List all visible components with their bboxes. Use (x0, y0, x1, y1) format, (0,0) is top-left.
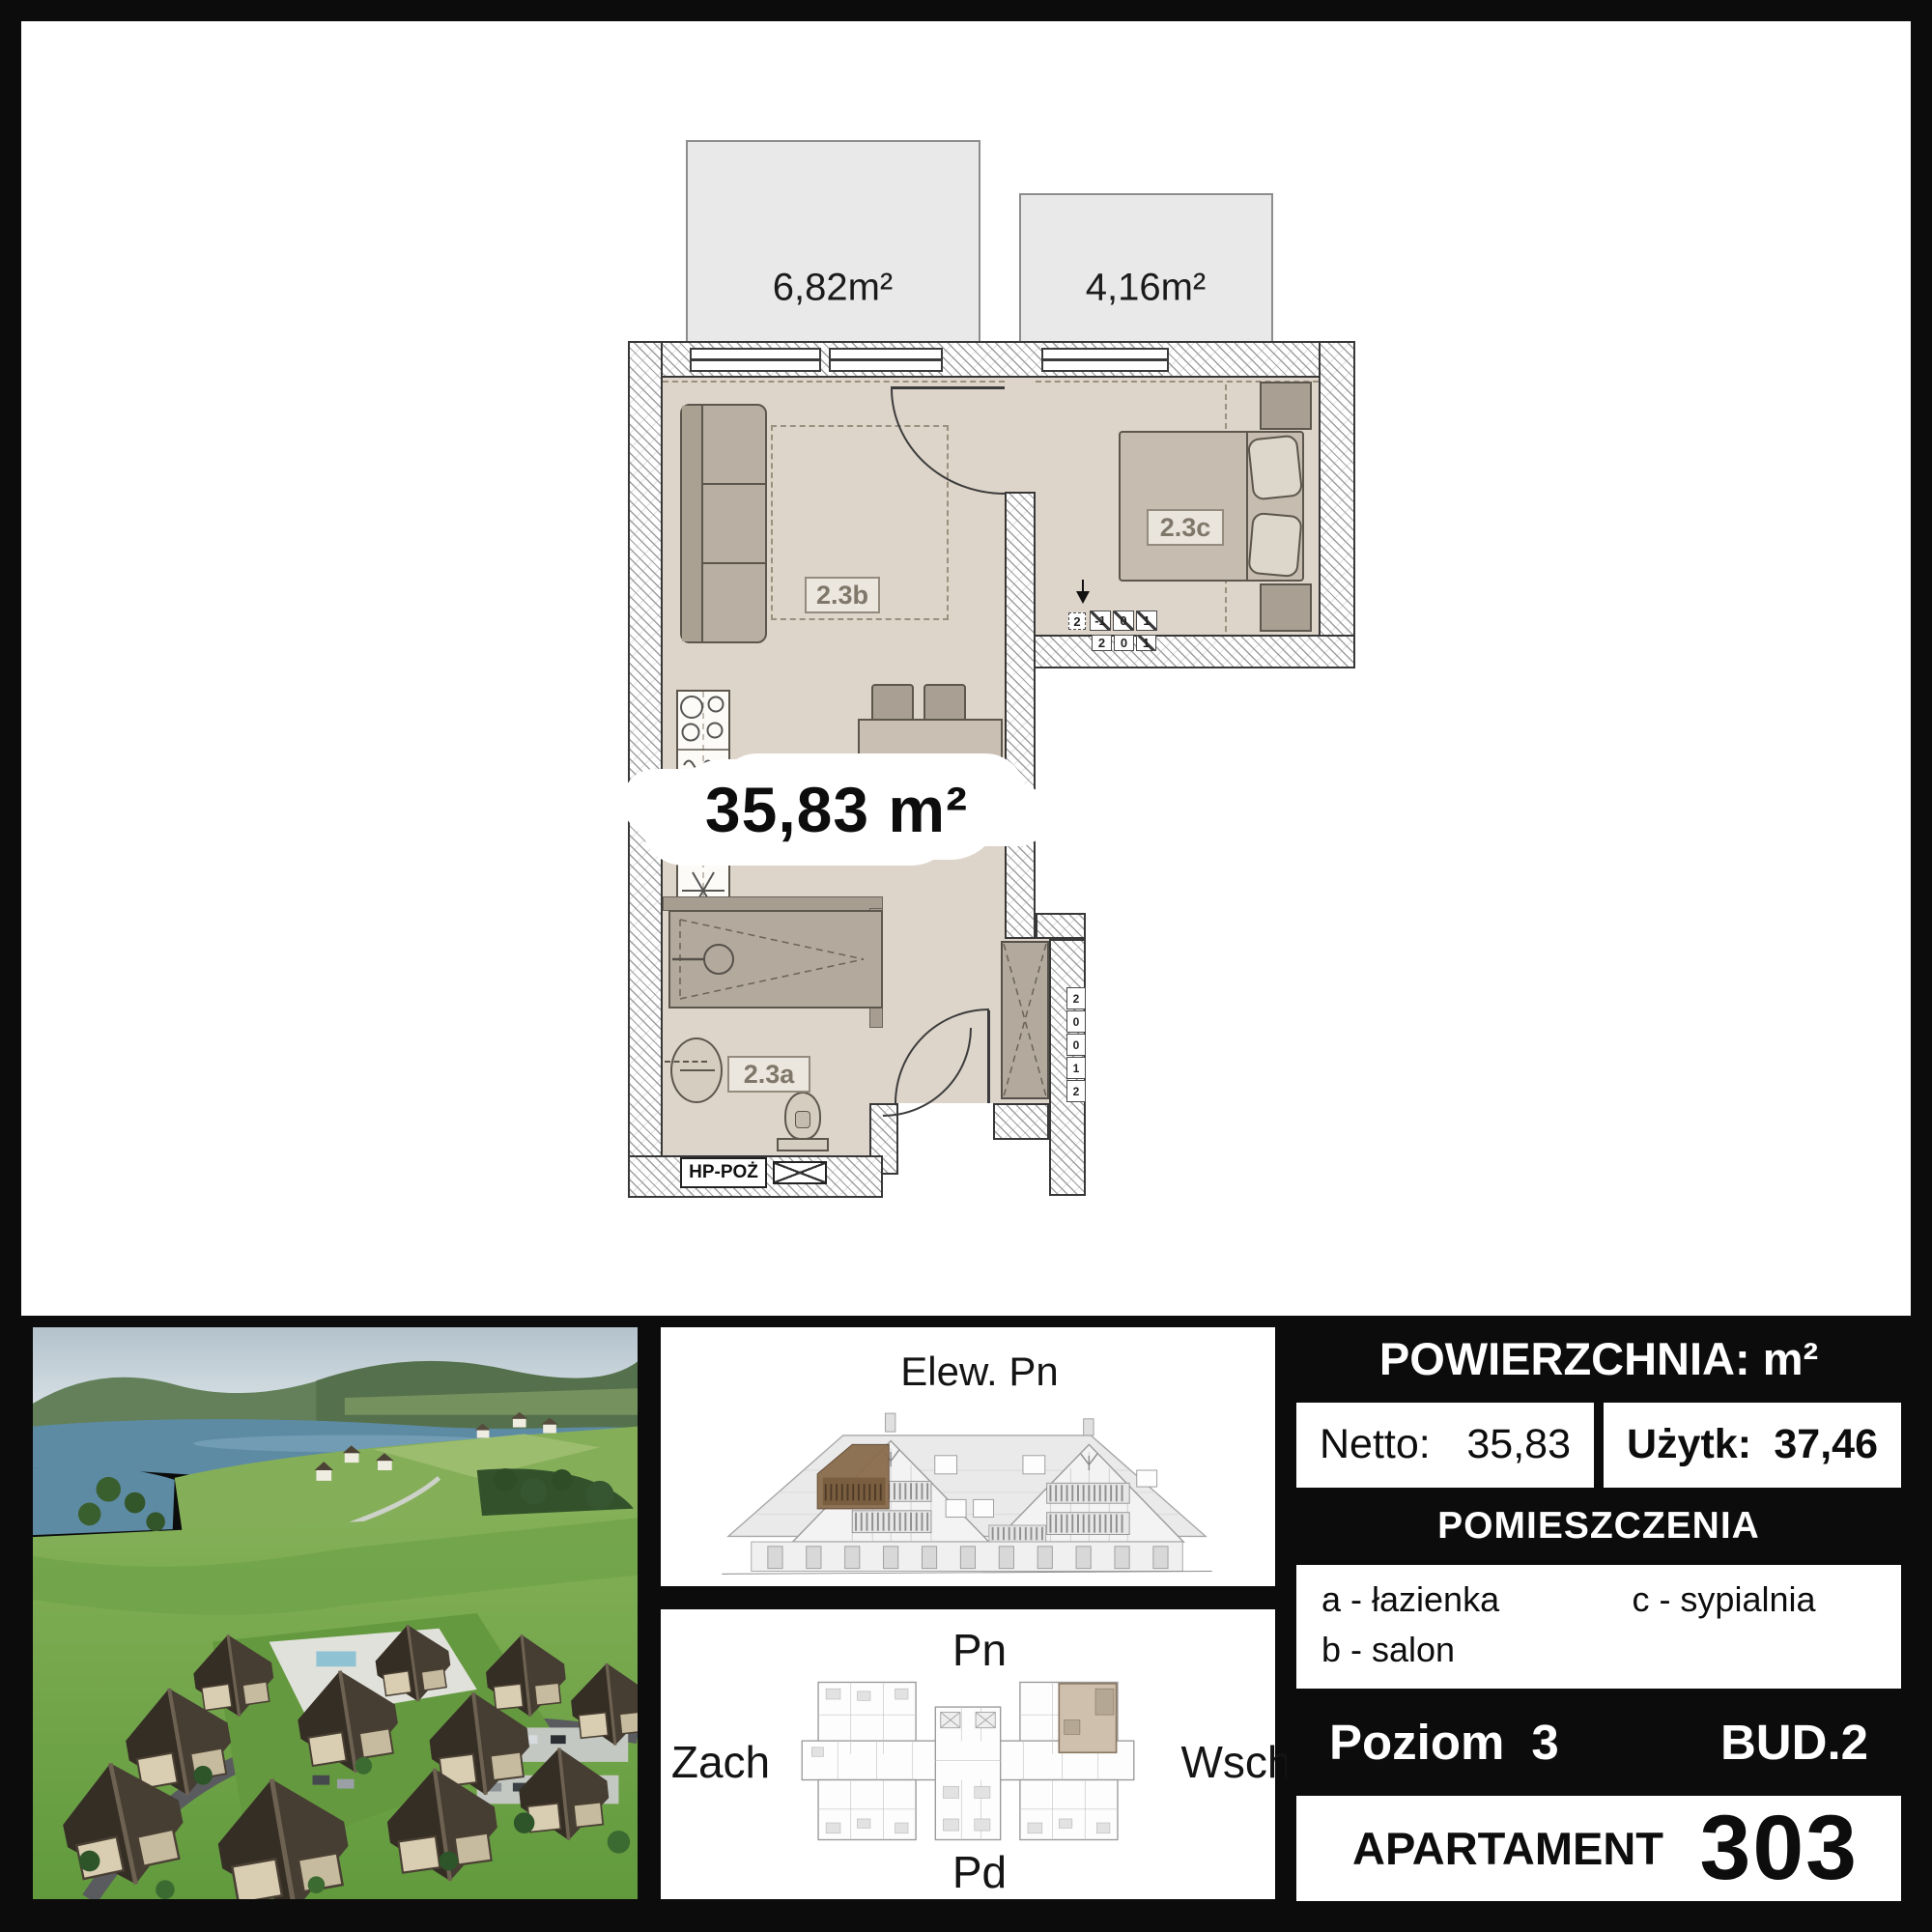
uzytk-value: 37,46 (1774, 1421, 1878, 1468)
level-value: 3 (1531, 1714, 1558, 1771)
wall-entry-stub (1036, 913, 1086, 939)
bathroom-sink (670, 1037, 723, 1103)
wall-east-bedroom (1319, 341, 1355, 668)
level-box: 2 (1092, 635, 1112, 651)
level-box: 0 (1113, 611, 1134, 631)
total-area-label: 35,83 m² (672, 759, 1001, 860)
legend-column-right: c - sypialnia (1632, 1575, 1876, 1625)
shower (668, 910, 883, 1009)
balcony-small-area-label: 4,16m² (1086, 267, 1207, 310)
elevation-drawing (701, 1397, 1233, 1580)
uzytk-label: Użytk: (1627, 1421, 1751, 1468)
pillow (1247, 434, 1303, 500)
info-panel: POWIERZCHNIA: m² Netto: 35,83 Użytk: 37,… (1287, 1316, 1911, 1911)
chair (871, 684, 914, 723)
stair-level-box: 1 (1066, 1057, 1086, 1079)
nightstand (1260, 583, 1312, 632)
bathroom-label: 2.3a (727, 1056, 810, 1093)
stair-level-box: 2 (1066, 987, 1086, 1009)
living-window-left (690, 348, 821, 372)
level-box: 2 (1068, 612, 1086, 630)
door-passage-floor (1005, 378, 1036, 492)
compass-east: Wsch (1181, 1736, 1293, 1788)
level-label: Poziom (1329, 1714, 1504, 1771)
balcony-large (686, 140, 980, 341)
compass-west: Zach (671, 1736, 770, 1788)
level-group: Poziom 3 (1329, 1714, 1559, 1771)
toilet-tank (777, 1138, 829, 1151)
bedroom-label: 2.3c (1147, 509, 1224, 546)
living-window-right (829, 348, 943, 372)
wall-interior (1005, 492, 1036, 939)
elevation-title: Elew. Pn (900, 1349, 1058, 1395)
level-row: Poziom 3 BUD.2 (1296, 1698, 1901, 1786)
living-room-label: 2.3b (805, 577, 880, 613)
chair (923, 684, 966, 723)
apartment-label: APARTAMENT (1352, 1822, 1663, 1875)
stair-level-box: 0 (1066, 1010, 1086, 1033)
sofa (680, 404, 767, 643)
level-box: -1 (1090, 611, 1111, 631)
site-photo (33, 1327, 638, 1899)
overview-floorplan (772, 1669, 1164, 1855)
wall-bedroom-south (1005, 635, 1355, 668)
fire-hydrant-label: HP-POŻ (680, 1157, 767, 1188)
level-box: 0 (1114, 635, 1134, 651)
legend-bedroom: c - sypialnia (1632, 1575, 1876, 1625)
apartment-row: APARTAMENT 303 (1296, 1796, 1901, 1901)
bathroom-door-arc (883, 1028, 972, 1117)
area-header: POWIERZCHNIA: m² (1296, 1325, 1901, 1393)
uzytk-box: Użytk: 37,46 (1604, 1403, 1901, 1489)
level-box: 1 (1136, 635, 1156, 651)
building-label: BUD.2 (1720, 1714, 1868, 1771)
rooms-header: POMIESZCZENIA (1296, 1497, 1901, 1555)
elevation-panel: Elew. Pn (649, 1316, 1287, 1598)
wall-entry-south (993, 1103, 1049, 1140)
apartment-number: 303 (1699, 1796, 1859, 1901)
stair-level-box: 0 (1066, 1034, 1086, 1056)
wardrobe (1001, 941, 1049, 1099)
stair-level-box: 2 (1066, 1080, 1086, 1102)
bathroom-wall-top (663, 896, 883, 911)
legend-column-left: a - łazienka b - salon (1321, 1575, 1632, 1675)
apartment-card: 6,82m² 4,16m² 2.3b (0, 0, 1932, 1932)
rooms-legend: a - łazienka b - salon c - sypialnia (1296, 1565, 1901, 1689)
compass-north: Pn (952, 1624, 1007, 1676)
netto-box: Netto: 35,83 (1296, 1403, 1594, 1489)
legend-bathroom: a - łazienka (1321, 1575, 1632, 1625)
dashed-line (663, 381, 1005, 383)
netto-value: 35,83 (1466, 1421, 1571, 1468)
overview-panel: Pn Zach Wsch Pd (649, 1598, 1287, 1911)
toilet-bowl (784, 1092, 821, 1140)
legend-livingroom: b - salon (1321, 1625, 1632, 1675)
bedroom-window (1041, 348, 1169, 372)
balcony-large-area-label: 6,82m² (773, 267, 894, 310)
arrow-down-icon (1075, 580, 1091, 603)
wall-west (628, 341, 663, 1198)
area-values-row: Netto: 35,83 Użytk: 37,46 (1296, 1403, 1901, 1489)
floor-plan: 6,82m² 4,16m² 2.3b (0, 0, 1932, 1316)
level-box: 1 (1136, 611, 1157, 631)
vent-box (773, 1161, 827, 1184)
netto-label: Netto: (1320, 1421, 1431, 1468)
nightstand (1260, 382, 1312, 430)
site-photo-panel (21, 1316, 649, 1911)
pillow (1247, 512, 1302, 578)
